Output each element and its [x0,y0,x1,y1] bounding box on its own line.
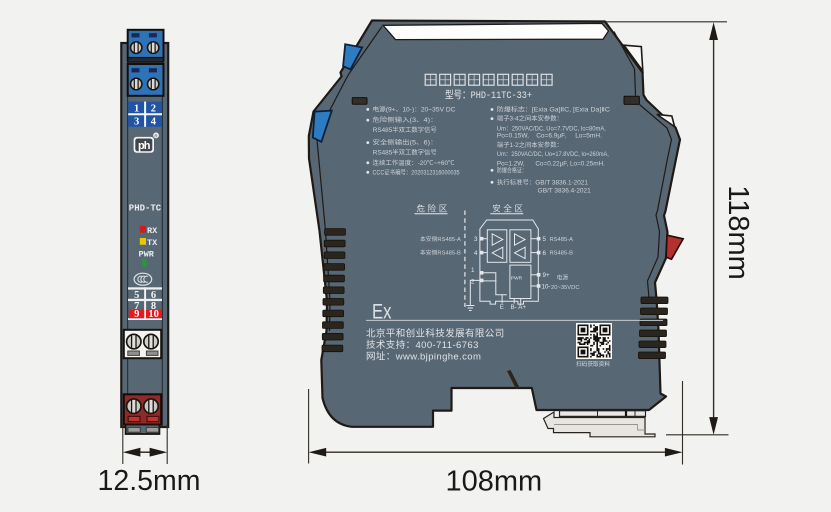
svg-text:RS485半双工数字信号: RS485半双工数字信号 [373,126,437,134]
svg-text:GB/T 3836.4-2021: GB/T 3836.4-2021 [538,189,592,195]
svg-text:B-: B- [511,304,517,311]
svg-text:Po=0.15W, Co=6.9μF, Lo=: Po=0.15W, Co=6.9μF, Lo=5mH. [497,134,602,140]
svg-text:6: 6 [543,250,547,257]
svg-text:1: 1 [134,104,139,115]
svg-text:执行标准号：GB/T 3836.1-2021: 执行标准号：GB/T 3836.1-2021 [497,178,589,186]
svg-text:6: 6 [151,290,156,301]
svg-text:连续工作温度：-20℃~+60℃: 连续工作温度：-20℃~+60℃ [373,159,455,167]
svg-text:PHD-TC: PHD-TC [129,204,162,214]
svg-text:9+: 9+ [543,272,550,279]
svg-text:扫码获取资料: 扫码获取资料 [576,360,610,368]
svg-text:北京平和创业科技发展有限公司: 北京平和创业科技发展有限公司 [366,328,505,340]
svg-text:电源: 电源 [557,274,569,282]
svg-text:Um：250VAC/DC, Uo=17.8VDC, Io=2: Um：250VAC/DC, Uo=17.8VDC, Io=260mA, [497,152,609,158]
svg-text:Um：250VAC/DC, Uo=7.7VDC, Io=80: Um：250VAC/DC, Uo=7.7VDC, Io=80mA, [497,127,606,133]
svg-text:3: 3 [134,117,139,128]
svg-text:防爆合格证：: 防爆合格证： [497,166,527,174]
svg-text:危险侧输入(3、4)：: 危险侧输入(3、4)： [373,116,438,124]
svg-text:RS485半双工数字信号: RS485半双工数字信号 [373,148,437,156]
svg-text:12.5mm: 12.5mm [98,465,201,497]
svg-text:电源(9+、10-)：20~35V DC: 电源(9+、10-)：20~35V DC [373,105,457,113]
svg-text:ph: ph [138,140,151,152]
svg-text:危险区: 危险区 [417,203,450,213]
svg-text:TX: TX [147,238,158,248]
svg-text:PWR: PWR [138,249,154,259]
svg-text:防爆标志：[Exia Ga]ⅡC, [Exia Da]ⅡC: 防爆标志：[Exia Ga]ⅡC, [Exia Da]ⅡC [497,106,611,114]
svg-text:2: 2 [151,104,156,115]
svg-text:Po=1.2W, Co=0.22μF, Lo=0.: Po=1.2W, Co=0.22μF, Lo=0.25mH. [497,161,605,167]
svg-text:10: 10 [148,309,159,320]
svg-text:RS485-A: RS485-A [550,237,574,243]
svg-text:4: 4 [151,117,157,128]
svg-text:118mm: 118mm [722,185,754,280]
svg-text:5: 5 [134,290,139,301]
svg-text:安全区: 安全区 [492,203,525,213]
svg-text:E: E [500,304,504,311]
svg-text:3: 3 [474,236,478,243]
svg-text:本安侧RS485-B: 本安侧RS485-B [420,249,461,257]
svg-text:技术支持：400-711-6763: 技术支持：400-711-6763 [366,339,479,351]
svg-text:20~35VDC: 20~35VDC [551,285,580,291]
svg-text:网址：www.bjpinghe.com: 网址：www.bjpinghe.com [366,351,481,363]
svg-text:CCC证书编号：2020312316000035: CCC证书编号：2020312316000035 [373,168,461,176]
svg-text:108mm: 108mm [445,466,542,498]
svg-text:本安侧RS485-A: 本安侧RS485-A [420,235,461,243]
svg-text:RS485-B: RS485-B [550,251,574,257]
svg-text:9: 9 [134,309,139,320]
svg-text:RX: RX [147,226,158,236]
svg-text:1: 1 [471,267,475,274]
svg-text:4: 4 [474,250,478,257]
svg-text:PWR: PWR [511,276,523,282]
svg-text:端子1-2之间本安参数：: 端子1-2之间本安参数： [497,141,563,149]
svg-text:端子3-4之间本安参数：: 端子3-4之间本安参数： [497,115,563,123]
svg-text:安全侧输出(5、6)：: 安全侧输出(5、6)： [373,139,438,147]
svg-text:A+: A+ [518,304,526,311]
svg-text:2: 2 [471,279,475,286]
svg-text:型号：PHD-11TC-33+: 型号：PHD-11TC-33+ [445,88,532,102]
svg-text:5: 5 [543,236,547,243]
svg-text:10-: 10- [542,284,551,291]
